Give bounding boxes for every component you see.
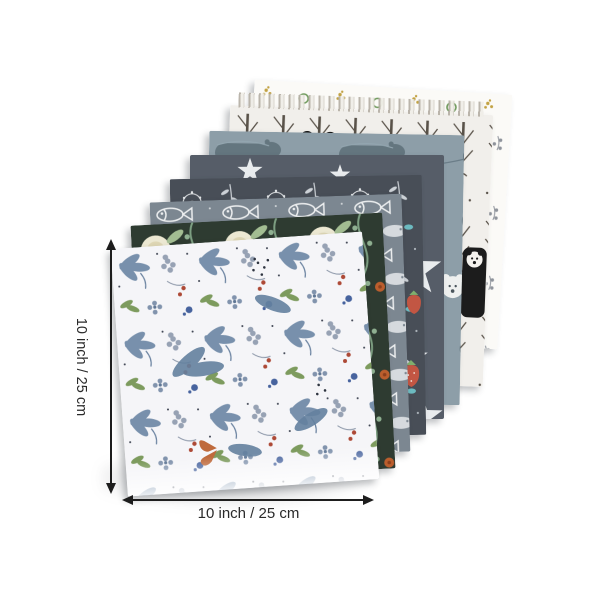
vertical-arrow bbox=[110, 249, 112, 484]
vertical-dimension-label: 10 inch / 25 cm bbox=[60, 245, 102, 489]
bear-motif bbox=[460, 247, 487, 318]
product-image: 10 inch / 25 cm 10 inch / 25 cm bbox=[0, 0, 600, 600]
fabric-layer-floral-front bbox=[111, 232, 380, 497]
horizontal-dimension-label: 10 inch / 25 cm bbox=[129, 505, 368, 522]
horizontal-arrow bbox=[132, 499, 364, 501]
white-bear-motif bbox=[441, 274, 463, 298]
